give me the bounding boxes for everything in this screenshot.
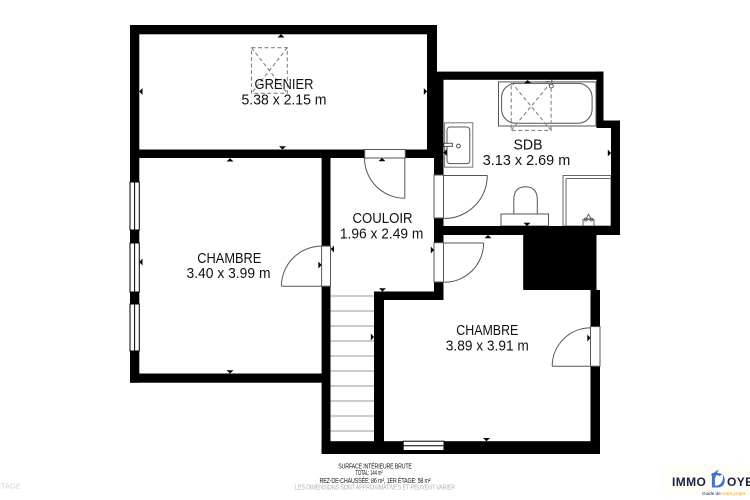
svg-text:3.89 x 3.91 m: 3.89 x 3.91 m — [446, 339, 529, 355]
svg-text:LES DIMENSIONS SONT APPROXIMAT: LES DIMENSIONS SONT APPROXIMATIVES ET PE… — [295, 485, 455, 492]
svg-text:ÉTAGE: ÉTAGE — [0, 482, 21, 491]
svg-text:IMMO: IMMO — [672, 475, 706, 489]
svg-text:D: D — [711, 470, 726, 493]
svg-text:CHAMBRE: CHAMBRE — [456, 323, 518, 339]
svg-text:1.96 x 2.49 m: 1.96 x 2.49 m — [340, 226, 424, 242]
svg-text:REZ-DE-CHAUSSÉE: 86 m², 1ER ÉT: REZ-DE-CHAUSSÉE: 86 m², 1ER ÉTAGE: 58 m² — [320, 476, 432, 485]
svg-text:OYEN: OYEN — [727, 475, 750, 489]
svg-text:3.13 x 2.69 m: 3.13 x 2.69 m — [483, 153, 571, 169]
svg-text:CHAMBRE: CHAMBRE — [197, 251, 261, 267]
svg-text:SDB: SDB — [514, 138, 543, 154]
svg-text:TOTAL: 144 m²: TOTAL: 144 m² — [356, 470, 384, 477]
svg-text:5.38 x 2.15 m: 5.38 x 2.15 m — [242, 92, 327, 108]
svg-text:Guide de votre projet.: Guide de votre projet. — [702, 491, 746, 496]
svg-text:3.40 x 3.99 m: 3.40 x 3.99 m — [187, 266, 271, 282]
svg-text:GRENIER: GRENIER — [255, 77, 314, 93]
svg-text:COULOIR: COULOIR — [353, 211, 413, 227]
